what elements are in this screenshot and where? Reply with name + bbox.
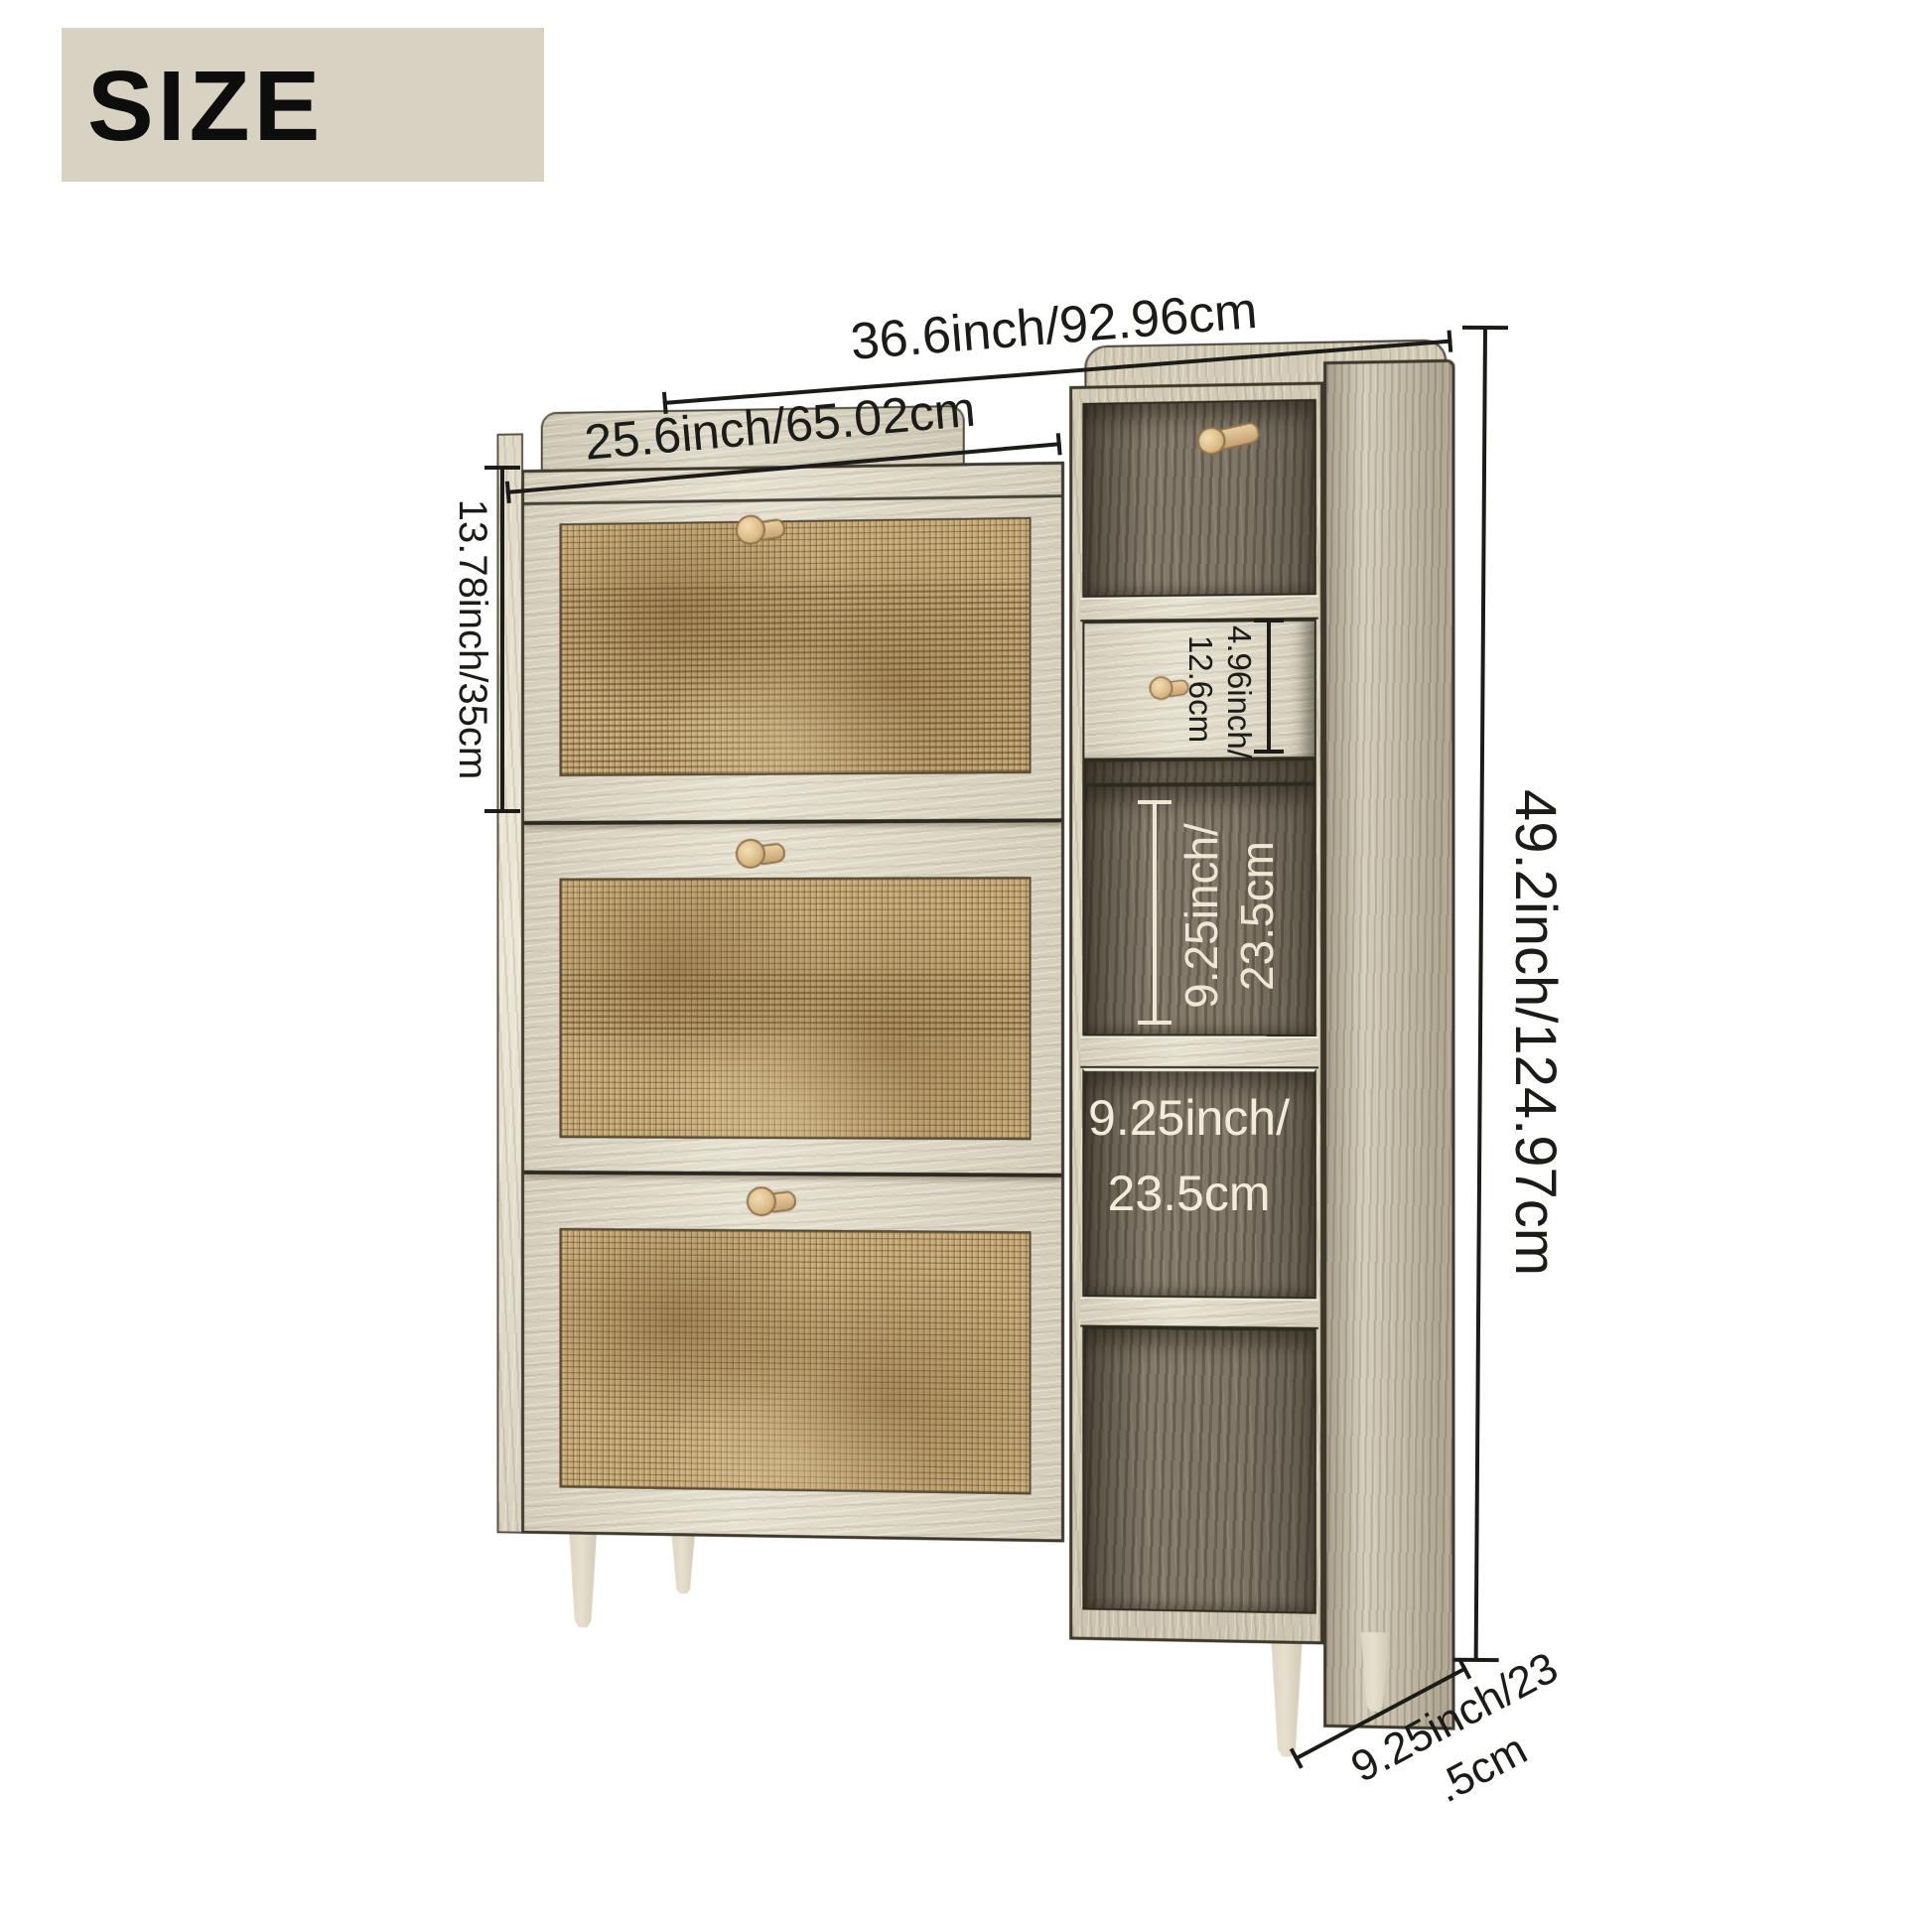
rattan-panel-1 <box>559 517 1031 776</box>
dim-side-shelf-label: 9.25inch/ 23.5cm <box>1173 809 1285 1023</box>
page-title: SIZE <box>87 28 324 185</box>
dim-drawer-height-line <box>1267 621 1271 752</box>
knob-cap <box>736 839 765 869</box>
rattan-panel-2 <box>559 877 1031 1140</box>
shelf-edge-3 <box>1080 1297 1318 1329</box>
dim-door-height-label: 13.78inch/35cm <box>449 466 496 813</box>
rattan-panel-3 <box>559 1228 1031 1495</box>
size-header-box: SIZE <box>62 28 544 182</box>
knob-cap <box>1150 676 1173 700</box>
open-cubby-4 <box>1082 1327 1316 1614</box>
door-separator-2 <box>524 1171 1061 1177</box>
dim-total-height-label: 49.2inch/124.97cm <box>1504 730 1566 1335</box>
dim-total-height-line <box>1474 328 1487 1660</box>
dim-front-shelf-label: 9.25inch/ 23.5cm <box>1077 1080 1301 1239</box>
dim-drawer-height-label: 4.96inch/ 12.6cm <box>1181 625 1259 753</box>
door-knob-2-icon <box>736 837 789 871</box>
knob-cap <box>747 1186 776 1216</box>
door-knob-1-icon <box>736 512 789 547</box>
shelf-edge-2 <box>1080 1035 1318 1068</box>
drawer-gap <box>1082 759 1316 785</box>
shoe-cabinet-front <box>521 462 1064 1543</box>
door-knob-3-icon <box>747 1184 800 1218</box>
dim-side-shelf-line <box>1153 802 1157 1023</box>
door-separator-1 <box>524 818 1061 825</box>
cabinet-illustration <box>494 263 1448 1773</box>
cabinet-leg-front-left <box>562 1528 603 1627</box>
flip-door-top-edge <box>524 494 1061 505</box>
cabinet-right-side-panel <box>1323 359 1455 1730</box>
cabinet-leg-rear-left <box>666 1536 700 1593</box>
dim-door-height-line <box>500 468 504 811</box>
